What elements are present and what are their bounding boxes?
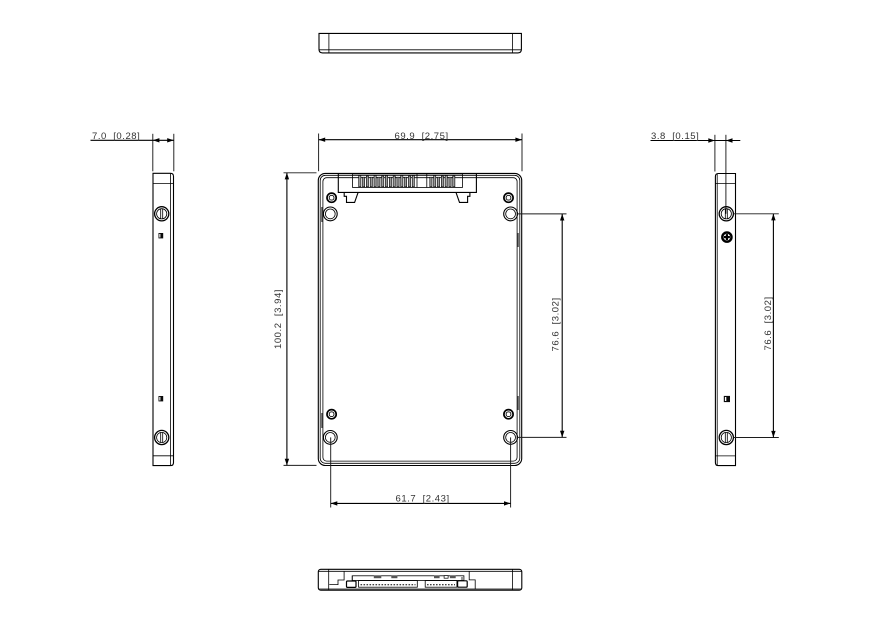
svg-text:69.9 [2.75]: 69.9 [2.75]	[395, 131, 449, 142]
svg-text:76.6 [3.02]: 76.6 [3.02]	[763, 296, 774, 350]
svg-text:3.8 [0.15]: 3.8 [0.15]	[651, 131, 699, 142]
svg-text:7.0 [0.28]: 7.0 [0.28]	[92, 131, 140, 142]
svg-text:61.7 [2.43]: 61.7 [2.43]	[396, 494, 450, 505]
svg-text:76.6 [3.02]: 76.6 [3.02]	[551, 297, 562, 351]
svg-text:100.2 [3.94]: 100.2 [3.94]	[273, 289, 284, 349]
